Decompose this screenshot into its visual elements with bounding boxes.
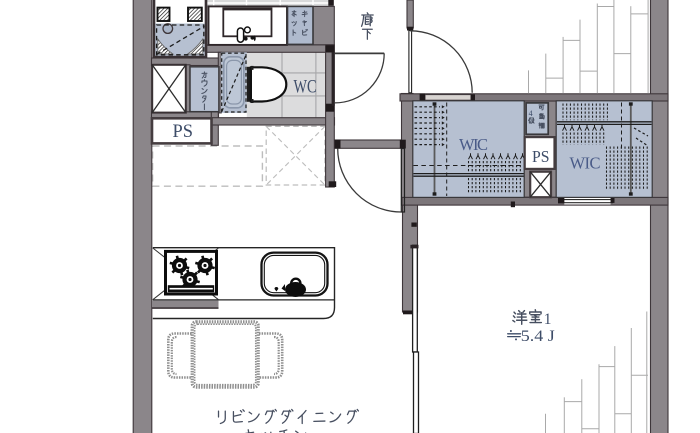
svg-text:4: 4 — [529, 109, 533, 118]
svg-text:PS: PS — [532, 147, 550, 166]
svg-text:1: 1 — [544, 311, 552, 328]
svg-text:WIC: WIC — [459, 135, 488, 154]
svg-text:5.4 J: 5.4 J — [521, 328, 555, 345]
svg-text:WC: WC — [294, 77, 317, 98]
svg-text:WIC: WIC — [570, 153, 601, 172]
svg-text:PS: PS — [173, 121, 194, 142]
